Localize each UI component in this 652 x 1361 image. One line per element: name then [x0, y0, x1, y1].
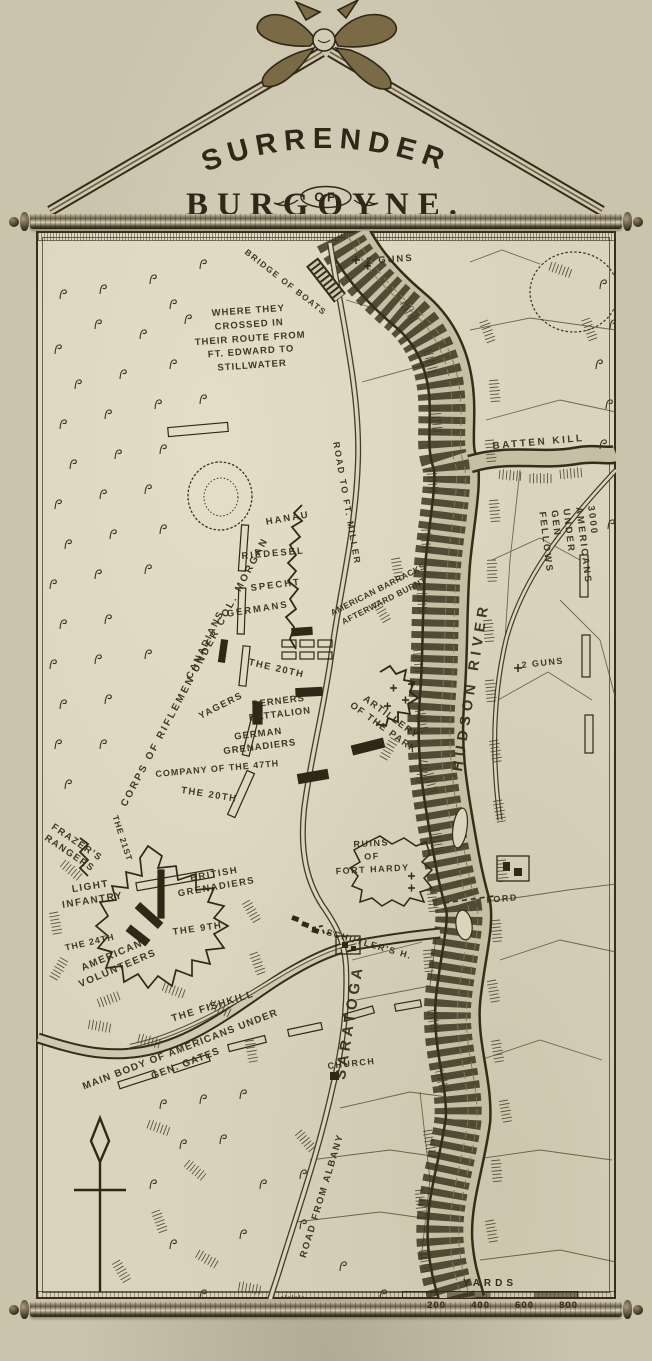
roller-finial: [633, 217, 643, 227]
tree-icon: [70, 460, 76, 469]
troop-bar: [292, 627, 312, 635]
hachure-icon: [238, 1281, 261, 1295]
tree-icon: [160, 525, 166, 534]
fort-hardy-outline: [350, 836, 432, 906]
tree-icon: [115, 450, 121, 459]
tree-icon: [100, 740, 106, 749]
hudson-river-shape: [338, 236, 478, 1299]
tree-icon: [200, 395, 206, 404]
tree-icon: [200, 1095, 206, 1104]
tree-icon: [65, 780, 71, 789]
troop-bar: [168, 422, 229, 436]
roller-finial: [633, 1305, 643, 1315]
header-decoration: SURRENDER OF BURGOYNE.: [0, 0, 652, 232]
scale-segment: [447, 1292, 491, 1298]
fortification-lines: [80, 505, 418, 934]
hachure-icon: [162, 982, 185, 999]
hachure-icon: [245, 1040, 259, 1063]
tree-icon: [185, 315, 191, 324]
hachure-icon: [499, 469, 521, 481]
scale-bar: YARDS 200 400 600 800: [402, 1278, 578, 1311]
hachure-icon: [295, 1129, 317, 1152]
troop-bar: [282, 652, 296, 659]
roller-knob: [623, 1300, 632, 1319]
tree-icon: [170, 300, 176, 309]
batten-kill-shape: [470, 454, 616, 464]
hachure-icon: [487, 560, 498, 581]
troop-bar: [238, 525, 248, 571]
tree-icon: [55, 345, 61, 354]
troop-bar: [158, 870, 164, 918]
compass-north-arrow-icon: [74, 1118, 126, 1292]
hachure-icon: [242, 900, 262, 923]
hachure-icon: [49, 957, 69, 980]
roller-finial: [9, 217, 19, 227]
tree-icon: [60, 290, 66, 299]
hachure-icon: [487, 980, 501, 1003]
hachure-icon: [151, 1210, 168, 1233]
troop-bar: [300, 640, 314, 647]
scale-segment: [403, 1292, 447, 1298]
map-drawing: [36, 231, 616, 1299]
troop-bar: [288, 1023, 323, 1037]
troop-bar: [136, 869, 214, 890]
tree-icon: [200, 260, 206, 269]
hachure-icon: [184, 1159, 207, 1181]
roller-knob: [20, 1300, 29, 1319]
roller-knob: [623, 212, 632, 231]
hachure-icon: [147, 1119, 170, 1136]
hachure-icon: [489, 500, 501, 522]
scale-bar-rule: [402, 1291, 578, 1299]
troop-bar: [300, 652, 314, 659]
hachure-icon: [282, 1295, 303, 1299]
hachure-icon: [560, 467, 582, 479]
scale-segment: [490, 1292, 534, 1298]
tree-icon: [100, 490, 106, 499]
tree-icon: [170, 360, 176, 369]
hachure-icon: [49, 912, 63, 935]
hachure-icon: [549, 261, 572, 278]
troop-bar: [126, 925, 149, 945]
hachure-icon: [391, 558, 405, 581]
tree-icon: [50, 660, 56, 669]
map-title-block: SURRENDER OF BURGOYNE.: [186, 123, 466, 223]
engraved-map-page: { "title": { "line1": "SURRENDER", "line…: [0, 0, 652, 1361]
tree-icon: [610, 320, 616, 329]
roller-finial: [9, 1305, 19, 1315]
troop-bar: [237, 588, 246, 634]
hachure-icon: [483, 620, 495, 642]
tree-icon: [340, 1262, 346, 1271]
ribbon-bow-icon: [257, 0, 396, 89]
tree-icon: [60, 620, 66, 629]
scale-tick: 400: [446, 1300, 490, 1311]
hachure-icon: [479, 320, 496, 343]
tree-icon: [145, 485, 151, 494]
troop-bar: [297, 769, 328, 783]
tree-icon: [260, 1180, 266, 1189]
troop-bar: [218, 640, 227, 663]
tree-icon: [105, 410, 111, 419]
tree-icon: [95, 320, 101, 329]
scale-tick: 200: [402, 1300, 446, 1311]
hachure-icon: [423, 950, 435, 972]
tree-icon: [380, 1290, 386, 1299]
tree-icon: [100, 285, 106, 294]
troop-bar: [582, 635, 590, 677]
tree-icon: [55, 500, 61, 509]
tree-icon: [95, 655, 101, 664]
tree-icon: [65, 540, 71, 549]
troop-bar: [118, 1070, 156, 1088]
hachure-icon: [491, 920, 503, 942]
tree-icon: [110, 530, 116, 539]
tree-icon: [608, 520, 614, 529]
scale-bar-title: YARDS: [402, 1278, 578, 1289]
tree-icon: [240, 1230, 246, 1239]
top-roller-bar: [30, 214, 622, 229]
hachure-icon: [491, 1160, 503, 1182]
tree-icon: [155, 400, 161, 409]
tree-icon: [75, 380, 81, 389]
hachure-icon: [491, 1040, 505, 1063]
hachure-icon: [249, 952, 266, 975]
troop-bar: [228, 770, 255, 817]
tree-icon: [145, 650, 151, 659]
tree-icon: [60, 420, 66, 429]
hachure-icon: [97, 991, 120, 1008]
hachure-icon: [60, 859, 83, 881]
tree-icon: [150, 275, 156, 284]
hachure-icon: [530, 473, 551, 484]
tree-icon: [145, 565, 151, 574]
troop-bar: [239, 646, 250, 687]
troop-bar: [296, 687, 322, 696]
tree-icon: [95, 570, 101, 579]
title-line-1: SURRENDER: [197, 123, 454, 178]
hachure-icon: [581, 318, 598, 341]
troop-bar: [395, 1000, 422, 1011]
tree-icon: [220, 1135, 226, 1144]
tree-icon: [60, 700, 66, 709]
scale-tick: 600: [490, 1300, 534, 1311]
tree-swamp-symbols: [50, 260, 616, 1299]
troop-bar: [351, 738, 384, 754]
tree-icon: [200, 1290, 206, 1299]
scale-segment: [534, 1292, 578, 1298]
tree-icon: [160, 1100, 166, 1109]
troop-bar: [253, 702, 262, 724]
tree-icon: [105, 695, 111, 704]
tree-icon: [105, 615, 111, 624]
hachure-icon: [372, 600, 392, 623]
tree-icon: [160, 445, 166, 454]
scale-tick: 800: [534, 1300, 578, 1311]
tree-icon: [600, 280, 606, 289]
fishkill-shape: [38, 933, 440, 1054]
tree-icon: [120, 370, 126, 379]
tree-icon: [240, 1090, 246, 1099]
scale-bar-ticks: 200 400 600 800: [402, 1300, 578, 1311]
tree-icon: [596, 360, 602, 369]
hachure-icon: [195, 1249, 218, 1269]
troop-bar: [585, 715, 593, 753]
tree-icon: [606, 400, 612, 409]
hill-hachures: [49, 261, 598, 1299]
troop-bar: [172, 1054, 210, 1072]
hachure-icon: [485, 1220, 499, 1243]
tree-icon: [180, 1140, 186, 1149]
tree-icon: [150, 1180, 156, 1189]
troop-bar: [580, 555, 588, 597]
roads: [130, 243, 616, 1299]
hachure-icon: [497, 860, 509, 882]
troop-bar: [228, 1036, 267, 1052]
hachure-icon: [499, 1100, 513, 1123]
hachure-icon: [489, 380, 501, 402]
hachure-icon: [112, 1260, 132, 1283]
roller-knob: [20, 212, 29, 231]
tree-icon: [140, 330, 146, 339]
tree-icon: [55, 740, 61, 749]
tree-icon: [50, 580, 56, 589]
hachure-icon: [88, 1019, 111, 1033]
tree-icon: [170, 1240, 176, 1249]
